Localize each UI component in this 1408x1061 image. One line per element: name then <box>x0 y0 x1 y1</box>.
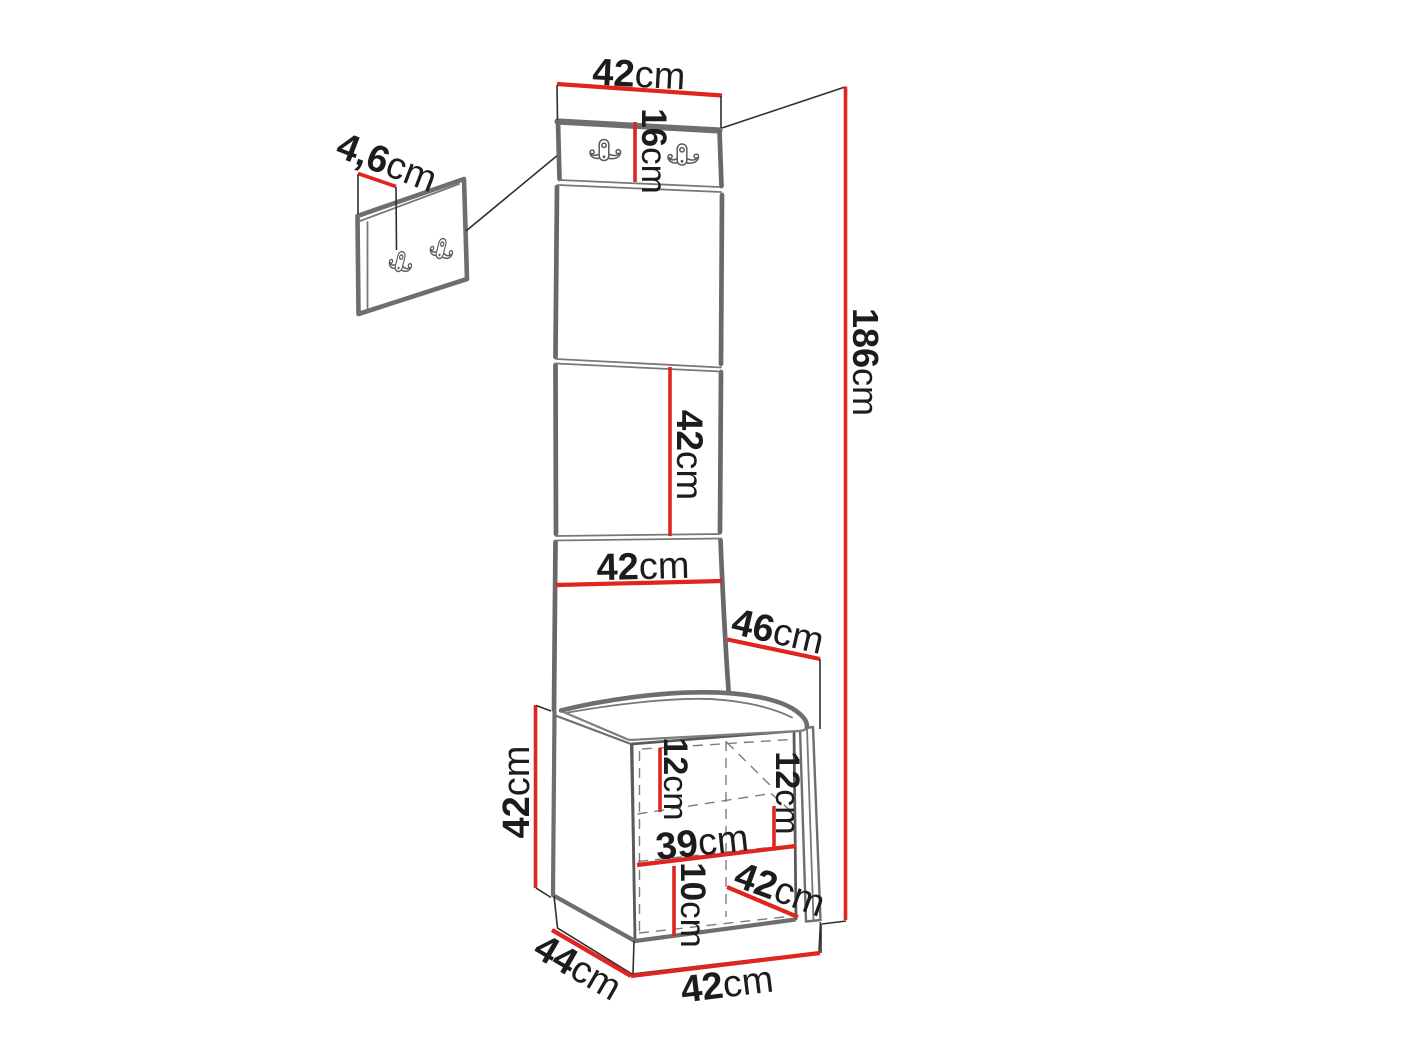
svg-text:12cm: 12cm <box>656 737 694 820</box>
svg-text:42cm: 42cm <box>669 410 710 500</box>
svg-text:42cm: 42cm <box>591 52 686 99</box>
svg-text:42cm: 42cm <box>496 746 538 839</box>
svg-text:10cm: 10cm <box>673 862 712 948</box>
svg-text:16cm: 16cm <box>634 108 673 194</box>
svg-text:12cm: 12cm <box>768 751 806 834</box>
svg-text:186cm: 186cm <box>845 308 886 416</box>
svg-text:42cm: 42cm <box>596 545 690 589</box>
